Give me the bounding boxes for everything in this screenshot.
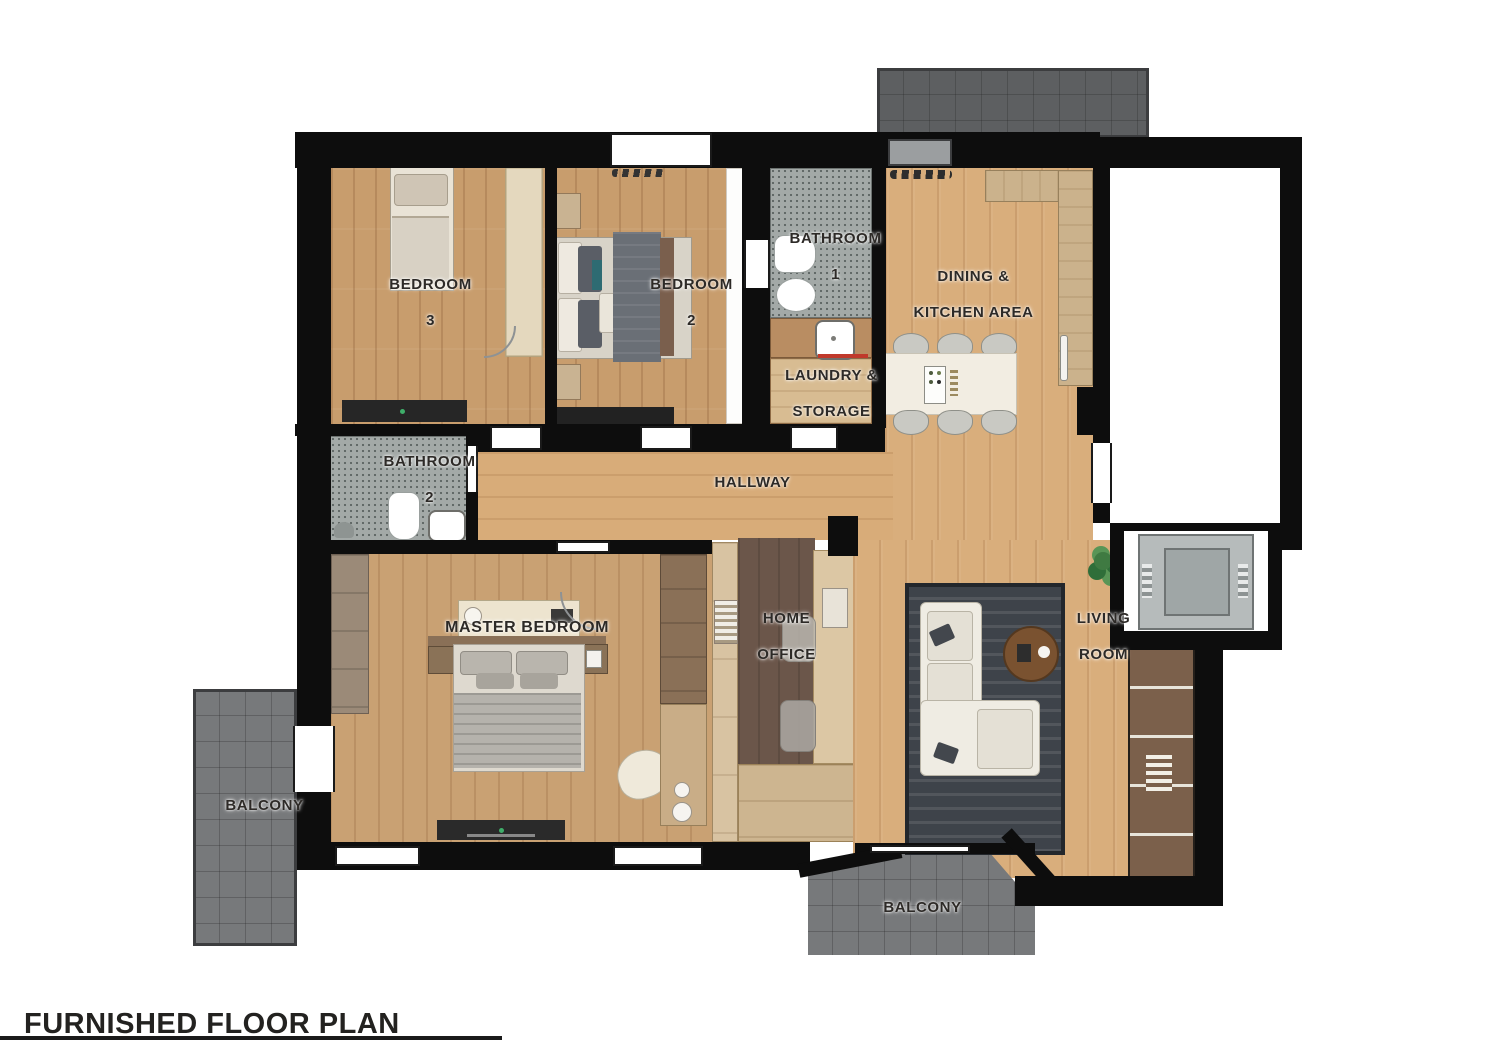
wall: [1083, 137, 1300, 168]
terrace-door: [888, 139, 952, 166]
pillow-icon: [476, 673, 514, 689]
tv-icon: [467, 834, 535, 837]
dresser-icon: [342, 400, 467, 422]
hallway-label-text: HALLWAY: [714, 474, 790, 491]
laundry-label: LAUNDRY & STORAGE: [766, 349, 878, 439]
decor-clutter-icon: [612, 169, 664, 177]
nightstand-icon: [553, 193, 581, 229]
office-desk: [813, 550, 855, 764]
living-room-label: LIVING ROOM: [1058, 592, 1131, 682]
title-underline: [0, 1036, 502, 1040]
decor-bowl-icon: [1038, 646, 1050, 658]
coffee-table-icon: [1003, 626, 1059, 682]
stool-icon: [672, 802, 692, 822]
balcony-bottom-label-text: BALCONY: [883, 899, 961, 916]
king-bed-icon: [453, 644, 585, 772]
entry-clutter-icon: [890, 170, 952, 179]
wall: [1077, 387, 1093, 435]
bathroom2-label: BATHROOM 2: [364, 435, 475, 525]
bedroom2-label: BEDROOM 2: [631, 258, 733, 348]
cabinet-vent-icon: [1146, 755, 1172, 791]
bedroom3-label-line1: BEDROOM: [389, 276, 472, 293]
vanity-desk-icon: [660, 704, 707, 826]
pillow-icon: [520, 673, 558, 689]
bedroom2-label-line2: 2: [687, 312, 696, 329]
wall: [1015, 876, 1223, 906]
wardrobe-icon: [331, 554, 369, 714]
cooktop-icon: [924, 366, 946, 404]
master-bedroom-label: MASTER BEDROOM: [425, 599, 609, 657]
door-opening: [744, 240, 770, 288]
master-bedroom-label-text: MASTER BEDROOM: [445, 619, 609, 636]
wardrobe-icon: [660, 554, 707, 704]
dining-kitchen-label: DINING & KITCHEN AREA: [894, 250, 1033, 340]
dining-kitchen-label-line1: DINING &: [937, 268, 1009, 285]
balcony-left-label: BALCONY: [206, 779, 303, 833]
home-office-label-line2: OFFICE: [757, 646, 816, 663]
tv-console-icon: [437, 820, 565, 840]
fridge-handle-icon: [1060, 335, 1068, 381]
door-opening: [640, 426, 692, 450]
entry-door-opening: [1091, 443, 1112, 503]
bedroom3-label-line2: 3: [426, 312, 435, 329]
door-opening: [490, 426, 542, 450]
balcony-left-label-text: BALCONY: [225, 797, 303, 814]
office-cabinets: [738, 764, 855, 842]
floor-plan: BEDROOM 3 BEDROOM 2 BATHROOM 1 DINING & …: [0, 0, 1500, 1060]
window: [335, 846, 420, 866]
console-icon: [556, 407, 674, 424]
dining-chair-icon: [981, 410, 1017, 435]
shower-head-icon: [334, 522, 354, 538]
terrace-area: [877, 68, 1149, 138]
dresser-knob-icon: [400, 409, 405, 414]
wall: [828, 516, 858, 556]
bedroom3-label: BEDROOM 3: [370, 258, 472, 348]
window: [870, 845, 970, 853]
drain-icon: [831, 336, 836, 341]
bedroom2-label-line1: BEDROOM: [650, 276, 733, 293]
burner-dots-icon: [929, 371, 933, 375]
stool-icon: [674, 782, 690, 798]
duvet-icon: [454, 693, 581, 768]
chaise-icon: [920, 700, 1040, 776]
wall: [1195, 640, 1223, 906]
books-icon: [1017, 644, 1031, 662]
throw-pillow-icon: [933, 742, 959, 765]
utensils-icon: [950, 370, 958, 396]
bathroom2-label-line2: 2: [425, 489, 434, 506]
wall: [545, 168, 557, 426]
bathroom1-label: BATHROOM 1: [770, 212, 881, 302]
office-chair-icon: [780, 700, 816, 752]
kitchen-island-icon: [883, 353, 1017, 415]
office-divider-wardrobe: [712, 542, 738, 842]
laundry-label-line2: STORAGE: [792, 403, 870, 420]
window: [613, 846, 703, 866]
bathroom2-label-line1: BATHROOM: [384, 453, 476, 470]
hallway-label: HALLWAY: [695, 456, 790, 510]
elevator-door-icon: [1238, 564, 1248, 598]
elevator-car-icon: [1138, 534, 1254, 630]
home-office-label-line1: HOME: [763, 610, 810, 627]
elevator-cab-icon: [1164, 548, 1230, 616]
accent-pillow-icon: [592, 260, 602, 290]
radiator-icon: [714, 600, 738, 644]
living-room-label-line2: ROOM: [1079, 646, 1128, 663]
monitor-icon: [822, 588, 848, 628]
wall: [1280, 137, 1302, 550]
wall: [330, 540, 712, 554]
laundry-label-line1: LAUNDRY &: [785, 367, 878, 384]
living-room-label-line1: LIVING: [1077, 610, 1131, 627]
door-opening: [556, 541, 610, 553]
home-office-label: HOME OFFICE: [738, 592, 816, 682]
cushion-icon: [977, 709, 1033, 769]
bathroom1-label-line2: 1: [831, 266, 840, 283]
dining-chair-icon: [893, 410, 929, 435]
elevator-door-icon: [1142, 564, 1152, 598]
dining-kitchen-label-line2: KITCHEN AREA: [914, 304, 1034, 321]
window: [610, 133, 712, 167]
bathroom1-label-line1: BATHROOM: [790, 230, 882, 247]
nightstand-icon: [553, 364, 581, 400]
dining-chair-icon: [937, 410, 973, 435]
indicator-dot-icon: [499, 828, 504, 833]
pillow-icon: [394, 174, 448, 206]
balcony-bottom-label: BALCONY: [864, 881, 961, 935]
